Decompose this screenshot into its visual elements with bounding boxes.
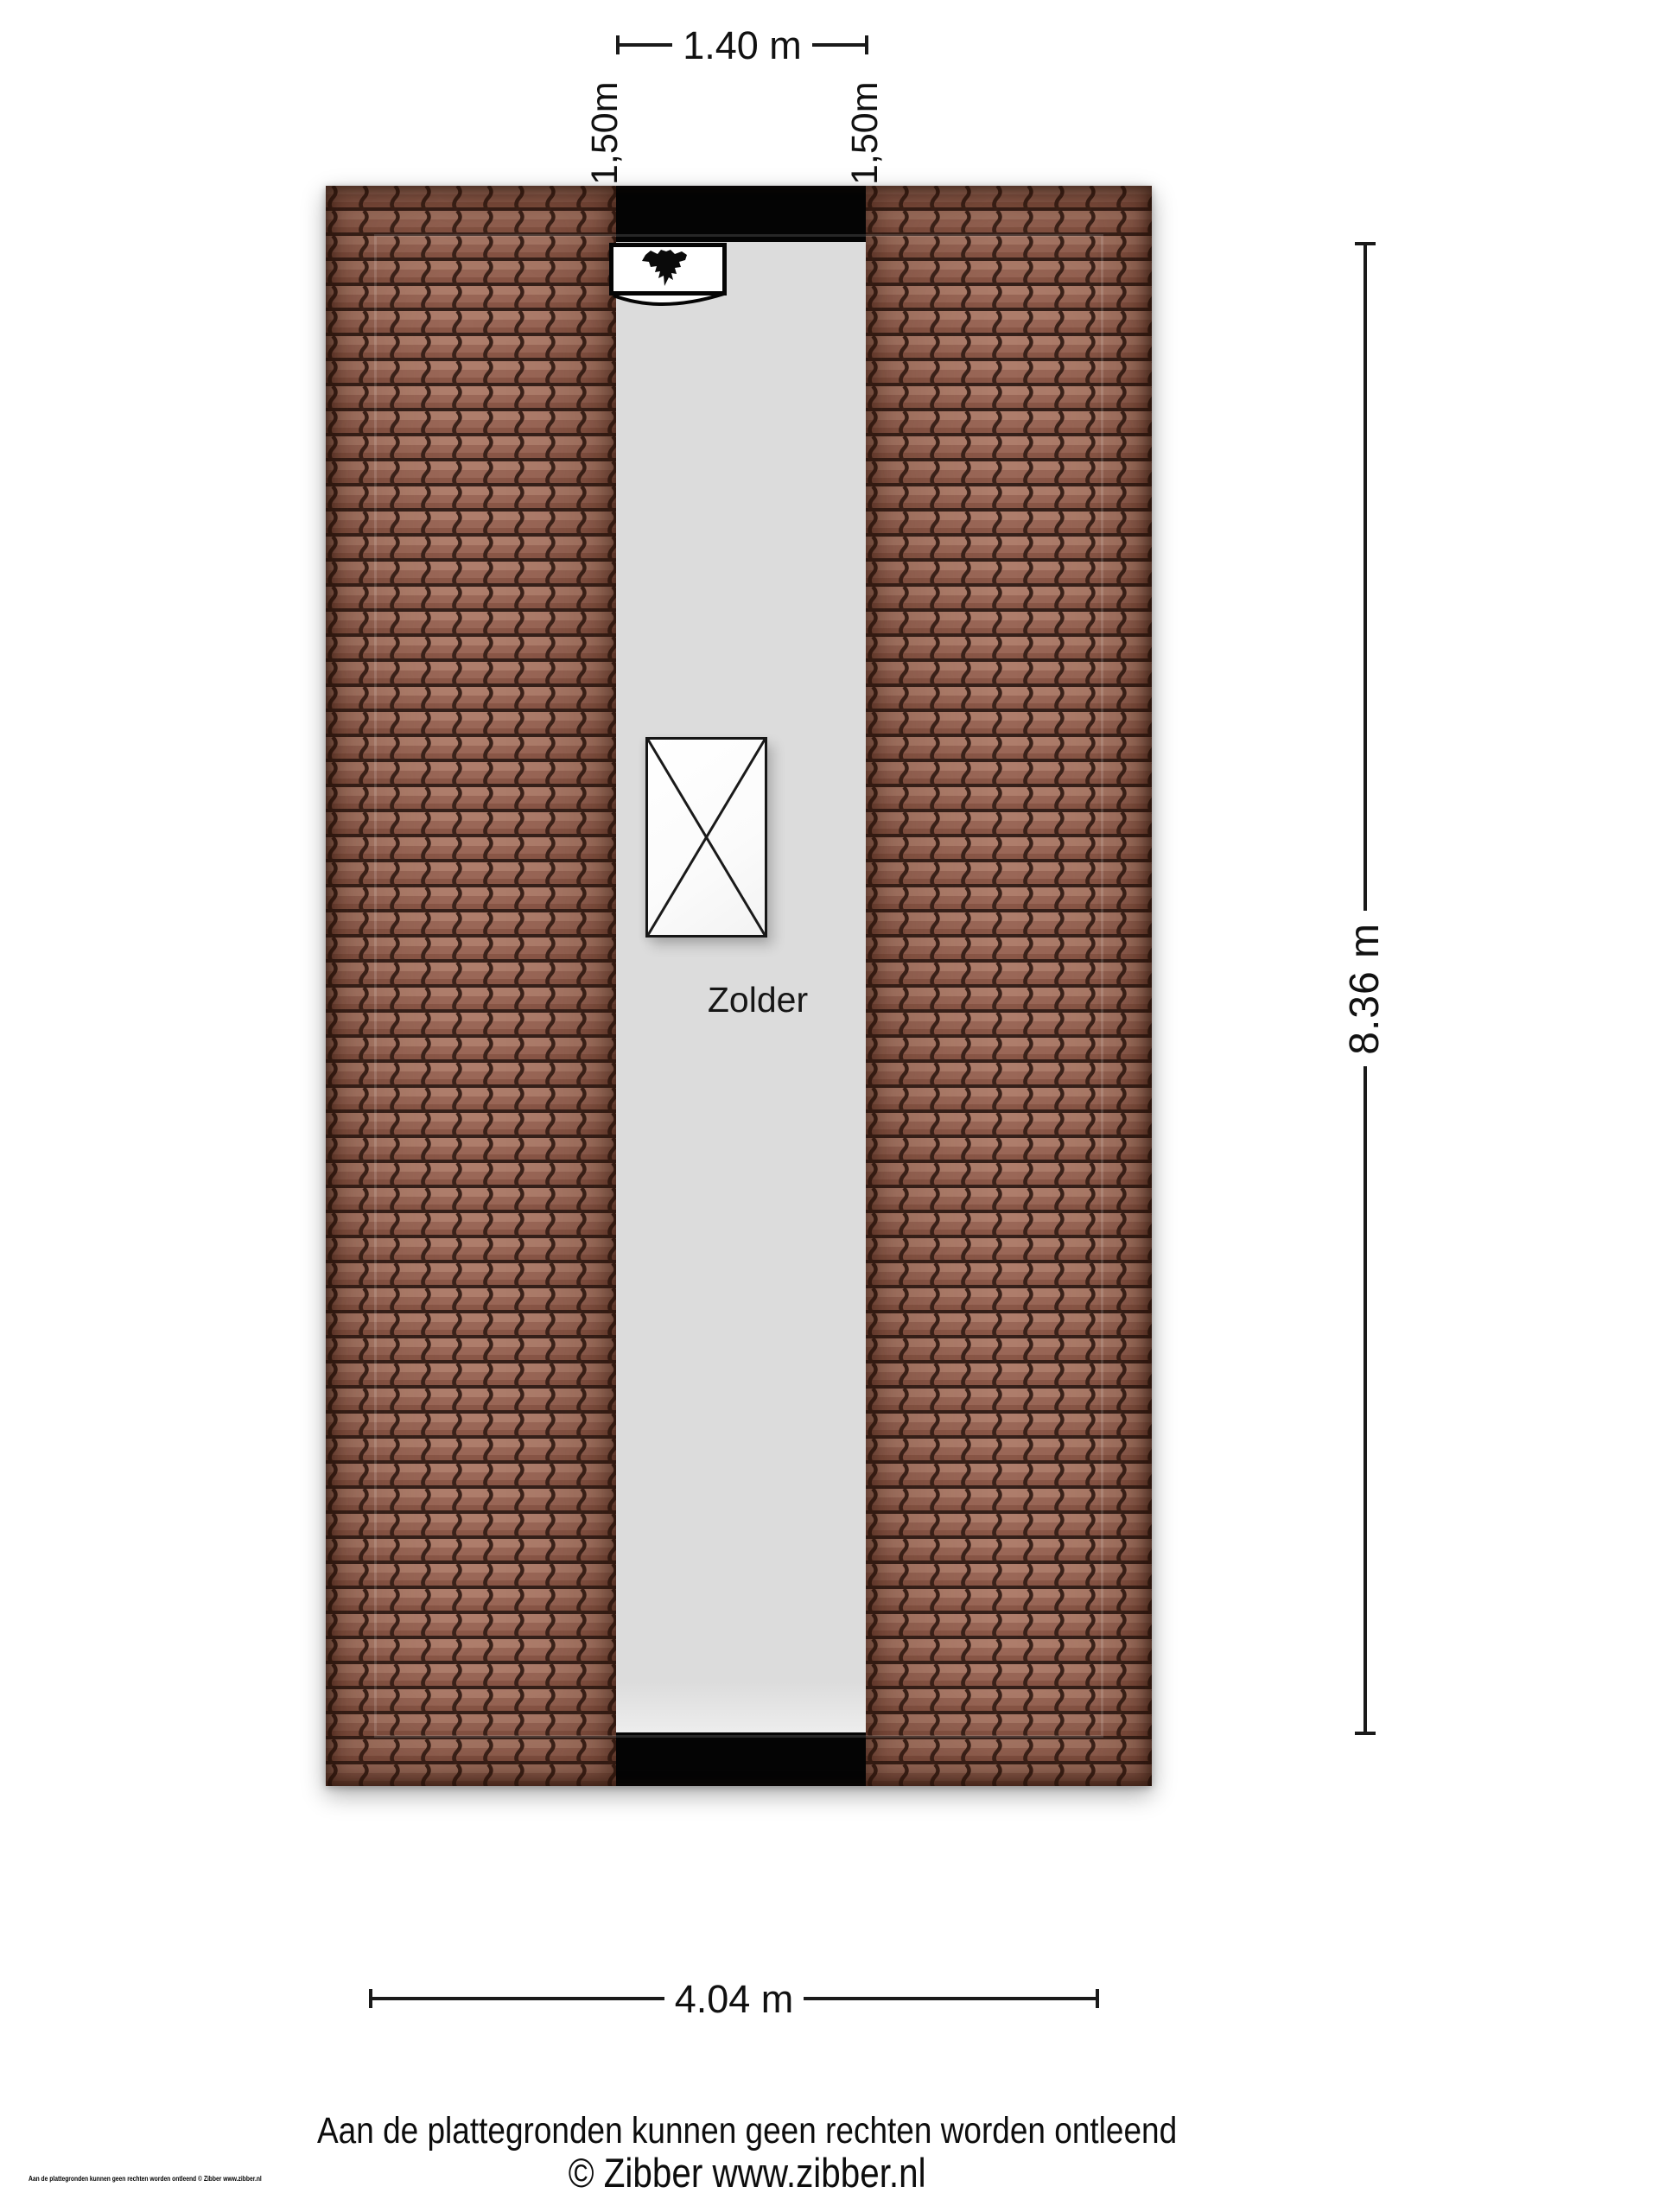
dimension-top: 1.40 m bbox=[616, 24, 868, 66]
floorplan-page: Zolder 1.40 m 1,50m 1,50m 8.36 m 4.04 m … bbox=[0, 0, 1659, 2212]
dimension-tick bbox=[865, 35, 868, 54]
roof-tile-pattern bbox=[326, 186, 616, 1786]
footer-copyright-text: © Zibber www.zibber.nl bbox=[569, 2151, 926, 2196]
small-print: Aan de plattegronden kunnen geen rechten… bbox=[29, 2175, 262, 2183]
floor-opening-symbol bbox=[645, 737, 767, 938]
footer-disclaimer: Aan de plattegronden kunnen geen rechten… bbox=[0, 2111, 1495, 2152]
x-cross-icon bbox=[648, 740, 765, 935]
dimension-right-label: 8.36 m bbox=[1344, 911, 1386, 1067]
dimension-right: 8.36 m bbox=[1344, 242, 1386, 1735]
fireplace-symbol bbox=[609, 243, 728, 315]
headroom-label-left: 1,50m bbox=[587, 76, 624, 185]
roof-right bbox=[866, 186, 1152, 1786]
dimension-tick bbox=[1096, 1989, 1099, 2008]
bottom-wall bbox=[616, 1732, 866, 1786]
dimension-bottom-label: 4.04 m bbox=[664, 1980, 804, 2018]
footer-disclaimer-text: Aan de plattegronden kunnen geen rechten… bbox=[317, 2111, 1177, 2152]
dimension-line bbox=[1363, 1066, 1367, 1732]
dimension-line bbox=[812, 43, 865, 47]
dimension-line bbox=[1363, 245, 1367, 911]
dimension-bottom: 4.04 m bbox=[369, 1978, 1099, 2019]
top-wall bbox=[616, 186, 866, 242]
attic-floorplan: Zolder bbox=[326, 186, 1152, 1786]
roof-tile-pattern bbox=[866, 186, 1152, 1786]
dimension-line bbox=[620, 43, 672, 47]
roof-left bbox=[326, 186, 616, 1786]
footer-copyright: © Zibber www.zibber.nl bbox=[0, 2151, 1495, 2196]
room-label: Zolder bbox=[708, 982, 808, 1018]
dimension-line bbox=[372, 1997, 664, 2000]
dimension-tick bbox=[1355, 1732, 1376, 1735]
dimension-top-label: 1.40 m bbox=[672, 26, 812, 65]
headroom-label-right: 1,50m bbox=[847, 76, 884, 185]
dimension-line bbox=[804, 1997, 1096, 2000]
